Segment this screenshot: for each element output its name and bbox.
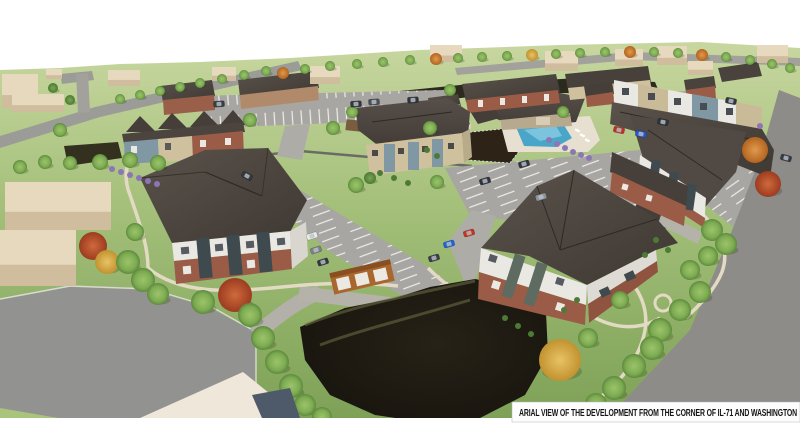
green-shrub: [391, 175, 397, 181]
car-glass: [353, 102, 358, 107]
purple-shrub: [546, 137, 552, 143]
tree: [785, 63, 795, 73]
window: [277, 238, 286, 246]
caption: ARIAL VIEW OF THE DEVELOPMENT FROM THE C…: [512, 402, 800, 422]
tree: [326, 121, 340, 135]
tree: [611, 291, 629, 309]
tree: [38, 155, 52, 169]
car: [213, 101, 224, 108]
window: [448, 143, 454, 149]
tree: [48, 83, 58, 93]
window-panel: [432, 139, 443, 167]
green-shrub: [515, 323, 521, 329]
purple-shrub: [109, 166, 115, 172]
tree: [191, 290, 215, 314]
window: [398, 148, 404, 154]
tree: [63, 156, 77, 170]
tree: [689, 281, 711, 303]
tree: [239, 70, 249, 80]
door: [522, 96, 527, 103]
tree: [243, 113, 257, 127]
tree: [251, 326, 275, 350]
purple-shrub: [562, 145, 568, 151]
door: [544, 94, 549, 101]
purple-shrub: [570, 149, 576, 155]
window: [246, 241, 255, 249]
green-shrub: [653, 237, 659, 243]
tree: [115, 94, 125, 104]
tree: [600, 47, 610, 57]
door: [500, 98, 505, 105]
tree: [405, 55, 415, 65]
tree: [673, 48, 683, 58]
tree: [698, 246, 718, 266]
caption-label: ARIAL VIEW OF THE DEVELOPMENT FROM THE C…: [519, 408, 797, 419]
tree: [325, 61, 335, 71]
tree: [742, 137, 768, 163]
tree: [122, 152, 138, 168]
tree: [155, 86, 165, 96]
context-building-face: [545, 63, 578, 71]
context-building-face: [615, 60, 643, 66]
car-glass: [216, 102, 221, 107]
tree: [378, 57, 388, 67]
tree: [348, 177, 364, 193]
window: [726, 108, 733, 115]
tree: [444, 84, 456, 96]
context-building-face: [0, 265, 76, 286]
window: [165, 143, 171, 150]
context-building-face: [688, 70, 713, 75]
tree: [92, 154, 108, 170]
tree: [53, 123, 67, 137]
tree: [430, 175, 444, 189]
green-shrub: [528, 331, 534, 337]
tree: [575, 48, 585, 58]
context-building-face: [5, 212, 111, 230]
tree: [147, 283, 169, 305]
tree: [95, 250, 119, 274]
window: [131, 146, 137, 153]
context-building: [688, 61, 713, 75]
purple-shrub: [136, 175, 142, 181]
townhome-brick-house: [584, 82, 614, 107]
green-shrub: [561, 307, 567, 313]
tree: [696, 49, 708, 61]
tree: [755, 171, 781, 197]
context-building-face: [108, 80, 140, 86]
tree: [13, 160, 27, 174]
tree: [715, 233, 737, 255]
tree: [502, 51, 512, 61]
green-shrub: [642, 252, 648, 258]
tree: [352, 59, 362, 69]
purple-shrub: [554, 141, 560, 147]
purple-shrub: [127, 172, 133, 178]
context-building: [12, 94, 64, 112]
tree: [65, 95, 75, 105]
window: [648, 93, 655, 100]
car-glass: [410, 98, 415, 103]
purple-shrub: [154, 181, 160, 187]
tree: [346, 106, 358, 118]
tree: [602, 376, 626, 400]
tree: [217, 74, 227, 84]
green-shrub: [405, 180, 411, 186]
context-building: [0, 230, 76, 286]
tree: [126, 223, 144, 241]
aerial-rendering: ARIAL VIEW OF THE DEVELOPMENT FROM THE C…: [0, 0, 800, 427]
tree: [364, 172, 376, 184]
window-brick-level: [247, 260, 256, 269]
green-shrub: [665, 247, 671, 253]
purple-shrub: [578, 152, 584, 158]
green-shrub: [574, 297, 580, 303]
tree: [669, 299, 691, 321]
window-panel: [384, 144, 395, 172]
tree: [578, 328, 598, 348]
tree: [300, 64, 310, 74]
window: [181, 247, 190, 255]
tree: [551, 49, 561, 59]
context-building-face: [46, 75, 62, 79]
tree: [624, 46, 636, 58]
context-building: [108, 70, 140, 86]
townhome-row-1: [160, 80, 215, 115]
clubhouse-entry: [536, 117, 550, 125]
tree: [649, 47, 659, 57]
car-glass: [371, 100, 376, 105]
window-brick-level: [183, 266, 192, 275]
context-building-face: [310, 77, 340, 84]
tree: [539, 339, 581, 381]
tree: [135, 90, 145, 100]
tree: [277, 67, 289, 79]
green-shrub: [434, 153, 440, 159]
tree: [175, 82, 185, 92]
tree: [265, 350, 289, 374]
window: [215, 244, 224, 252]
purple-shrub: [145, 178, 151, 184]
window: [622, 88, 629, 95]
purple-shrub: [757, 123, 763, 129]
tree: [238, 303, 262, 327]
tree: [526, 49, 538, 61]
road-stub-vertical: [76, 73, 90, 113]
window: [200, 140, 206, 147]
context-building-face: [12, 105, 64, 112]
green-shrub: [424, 147, 430, 153]
window: [225, 138, 231, 145]
tree: [453, 53, 463, 63]
tree: [150, 155, 166, 171]
context-building: [545, 51, 578, 71]
tree: [430, 53, 442, 65]
context-building: [46, 69, 62, 79]
tree: [261, 66, 271, 76]
context-building-face: [657, 58, 687, 65]
green-shrub: [377, 170, 383, 176]
car: [368, 99, 379, 106]
tree: [622, 354, 646, 378]
rendering-canvas: ARIAL VIEW OF THE DEVELOPMENT FROM THE C…: [0, 0, 800, 427]
tree: [423, 121, 437, 135]
context-building: [5, 182, 111, 230]
window: [372, 150, 378, 156]
tree: [680, 260, 700, 280]
tree: [195, 78, 205, 88]
tree: [721, 52, 731, 62]
tree: [640, 336, 664, 360]
car: [350, 101, 361, 108]
tree: [557, 106, 569, 118]
window: [700, 103, 707, 110]
tree: [745, 55, 755, 65]
purple-shrub: [586, 155, 592, 161]
car: [407, 97, 418, 104]
tree: [477, 52, 487, 62]
window-panel: [408, 142, 419, 170]
green-shrub: [502, 315, 508, 321]
purple-shrub: [118, 169, 124, 175]
window: [674, 98, 681, 105]
tree: [767, 59, 777, 69]
door: [478, 100, 483, 107]
